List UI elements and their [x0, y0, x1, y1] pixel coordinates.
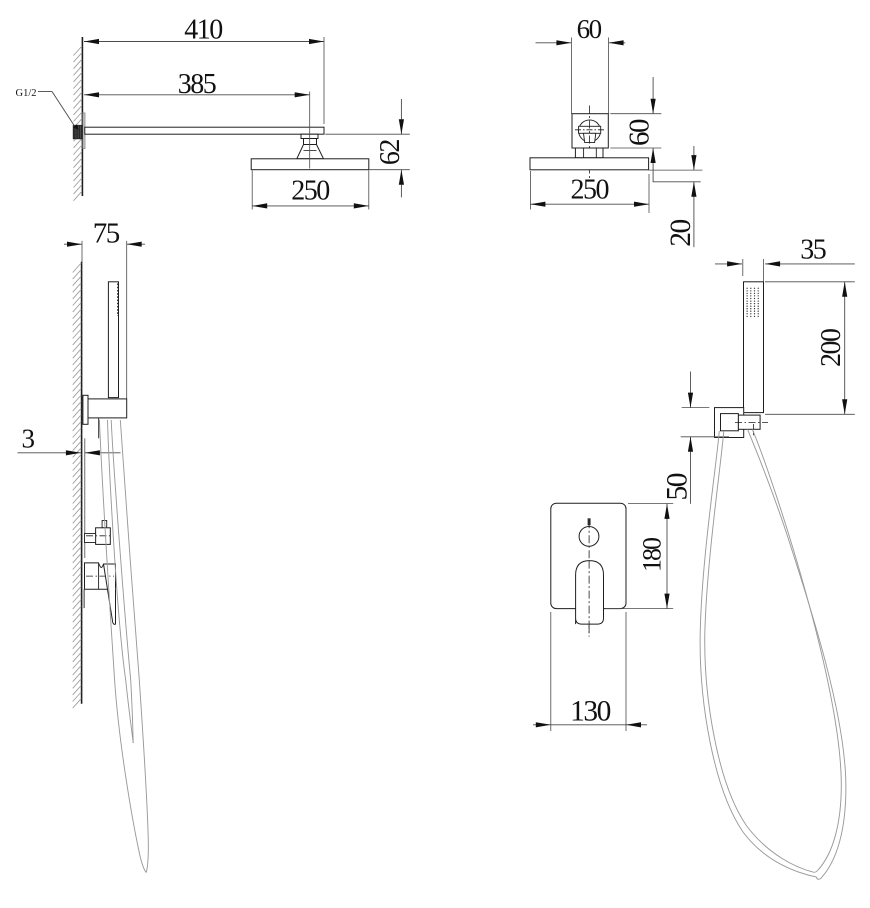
svg-text:50: 50 — [661, 473, 693, 500]
svg-text:250: 250 — [571, 175, 609, 206]
svg-text:3: 3 — [22, 424, 35, 454]
svg-text:35: 35 — [800, 235, 826, 266]
svg-text:60: 60 — [577, 14, 602, 44]
svg-text:20: 20 — [665, 220, 697, 247]
svg-text:250: 250 — [291, 176, 329, 207]
svg-text:130: 130 — [570, 695, 611, 727]
svg-text:200: 200 — [816, 329, 847, 367]
svg-text:62: 62 — [375, 140, 406, 166]
svg-text:75: 75 — [93, 218, 120, 250]
svg-text:180: 180 — [638, 537, 667, 572]
svg-text:385: 385 — [178, 69, 216, 100]
svg-text:G1/2: G1/2 — [16, 88, 37, 99]
svg-text:410: 410 — [184, 15, 222, 46]
svg-text:60: 60 — [624, 119, 656, 146]
